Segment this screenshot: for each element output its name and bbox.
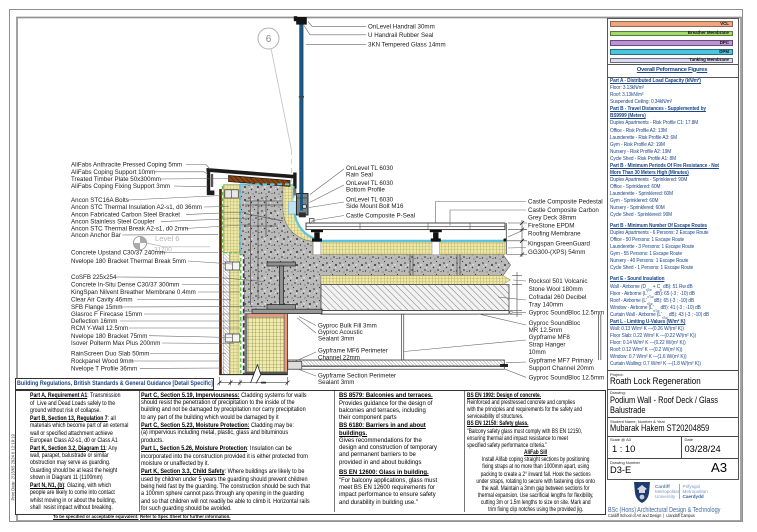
svg-text:Isover Polterm Max Plus 200mm: Isover Polterm Max Plus 200mm [71, 340, 160, 347]
svg-text:Stone Wool 180mm: Stone Wool 180mm [529, 286, 583, 293]
svg-text:Rain Seal: Rain Seal [346, 172, 373, 179]
svg-text:Treated Timber Plate 50x300mm: Treated Timber Plate 50x300mm [71, 176, 161, 183]
svg-text:Support Channel 20mm: Support Channel 20mm [529, 365, 594, 372]
svg-text:Ancon STC16A Bolts: Ancon STC16A Bolts [71, 197, 129, 204]
svg-text:Nvelope 180 Bracket 75mm: Nvelope 180 Bracket 75mm [71, 333, 147, 340]
svg-text:Deflection 16mm: Deflection 16mm [71, 318, 117, 325]
svg-text:Kingspan GreenGuard: Kingspan GreenGuard [528, 241, 590, 248]
svg-text:Gypframe MF8: Gypframe MF8 [529, 334, 571, 341]
svg-text:FireStone EPDM: FireStone EPDM [528, 223, 574, 230]
svg-text:Tray 140mm: Tray 140mm [529, 302, 564, 309]
svg-text:Concrete In-Situ Dense C30/37: Concrete In-Situ Dense C30/37 300mm [71, 282, 179, 289]
svg-text:Sealant 3mm: Sealant 3mm [318, 379, 354, 386]
svg-text:3KN Tempered Glass 14mm: 3KN Tempered Glass 14mm [368, 42, 446, 49]
svg-text:RCM Y-Wall 12.5mm: RCM Y-Wall 12.5mm [71, 325, 128, 332]
svg-text:Nvelope T Profile 36mm: Nvelope T Profile 36mm [71, 366, 137, 373]
svg-text:Side Mount Bolt M16: Side Mount Bolt M16 [346, 203, 404, 210]
svg-text:AliFabs Coping Support 10mm: AliFabs Coping Support 10mm [71, 169, 155, 176]
svg-text:Glasroc F Firecase 15mm: Glasroc F Firecase 15mm [71, 311, 142, 318]
svg-text:6: 6 [266, 34, 272, 45]
svg-text:MR 12.5mm: MR 12.5mm [529, 327, 563, 334]
svg-text:Rocksol 501 Volcanic: Rocksol 501 Volcanic [529, 278, 588, 285]
svg-text:Bottom Profile: Bottom Profile [346, 187, 385, 194]
svg-text:Castle Composite Carbon: Castle Composite Carbon [528, 207, 599, 214]
svg-text:Castle Composite P-Seal: Castle Composite P-Seal [346, 213, 415, 220]
svg-text:Ancon Anchor Bar: Ancon Anchor Bar [71, 232, 121, 239]
svg-text:KingSpan Nilvent Breather Memb: KingSpan Nilvent Breather Membrane 0.4mm [71, 289, 196, 296]
svg-text:CoSFB 225x254: CoSFB 225x254 [71, 274, 117, 281]
svg-text:10mm: 10mm [529, 349, 546, 356]
svg-text:Strap Hanger: Strap Hanger [529, 342, 566, 349]
svg-text:Gyproc SoundBloc 12.5mm: Gyproc SoundBloc 12.5mm [529, 309, 605, 316]
svg-text:Grey Deck 38mm: Grey Deck 38mm [528, 215, 576, 222]
svg-text:Gyproc SoundBloc: Gyproc SoundBloc [529, 320, 581, 327]
svg-text:AliFabs Anthracite Pressed Cop: AliFabs Anthracite Pressed Coping 5mm [71, 162, 182, 169]
svg-text:Channel 22mm: Channel 22mm [318, 354, 360, 361]
svg-text:Clear Air Cavity 46mm: Clear Air Cavity 46mm [71, 297, 133, 304]
svg-text:Rockpanel Wood 9mm: Rockpanel Wood 9mm [71, 358, 133, 365]
svg-text:Castle Composite Pedestal: Castle Composite Pedestal [528, 199, 603, 206]
svg-text:GG300-(XPS) 54mm: GG300-(XPS) 54mm [528, 249, 585, 256]
svg-text:Sealant 3mm: Sealant 3mm [318, 336, 354, 343]
svg-text:Nvelope 180 Bracket Thermal Br: Nvelope 180 Bracket Thermal Break 5mm [71, 258, 186, 265]
svg-text:Ancon Fabricated Carbon Steel: Ancon Fabricated Carbon Steel Bracket [71, 212, 180, 219]
svg-text:OnLevel Handrail 30mm: OnLevel Handrail 30mm [368, 23, 435, 30]
svg-text:Cofradal 260 Decibel: Cofradal 260 Decibel [529, 294, 587, 301]
svg-text:Level 6: Level 6 [155, 234, 180, 243]
svg-text:SFB Flange 15mm: SFB Flange 15mm [71, 304, 123, 311]
svg-text:U Handrail Rubber Seal: U Handrail Rubber Seal [368, 32, 433, 39]
svg-text:RainScreen Duo Slab 50mm: RainScreen Duo Slab 50mm [71, 351, 149, 358]
svg-text:Gypframe MF7 Primary: Gypframe MF7 Primary [529, 358, 594, 365]
svg-text:AliFabs Coping Fixing Support: AliFabs Coping Fixing Support 3mm [71, 183, 170, 190]
svg-text:Concrete Upstand C30/37 240mm: Concrete Upstand C30/37 240mm [71, 250, 165, 257]
svg-text:Gyproc SoundBloc 12.5mm: Gyproc SoundBloc 12.5mm [529, 374, 605, 381]
svg-text:Ancon STC Thermal Insulation A: Ancon STC Thermal Insulation A2-s1, d0 3… [71, 204, 202, 211]
svg-text:Roofing Membrane: Roofing Membrane [528, 230, 581, 237]
